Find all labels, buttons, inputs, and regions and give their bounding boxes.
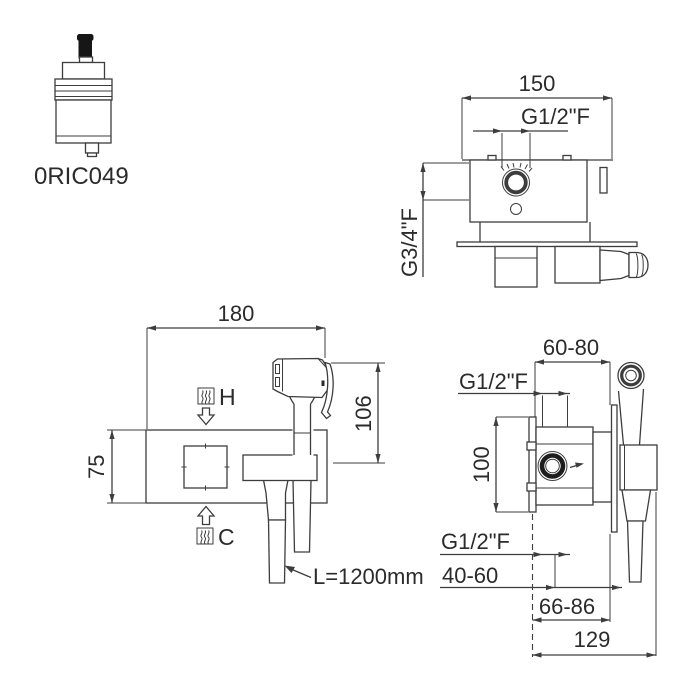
hose-side: [628, 521, 644, 582]
leader-arrowhead: [285, 566, 296, 574]
sprayer-body-line: [619, 391, 624, 445]
arrowhead: [521, 128, 530, 133]
cartridge-stem: [79, 39, 92, 58]
plate-edge-on: [612, 405, 618, 532]
arrowhead: [647, 652, 656, 657]
dim-66-86-label: 66-86: [539, 594, 595, 619]
cartridge-seat-ring: [542, 456, 563, 477]
sprayer-head: [273, 359, 330, 398]
arrowhead: [533, 652, 542, 657]
cold-label: C: [218, 524, 235, 550]
cold-water-symbol: C: [197, 507, 235, 551]
dim-100-label: 100: [469, 446, 494, 483]
wall-flange: [529, 417, 536, 512]
body-tab: [527, 483, 536, 491]
wave-line-icon: [201, 531, 202, 544]
cartridge-drawing: 0RIC049: [34, 35, 129, 191]
arrowhead: [612, 585, 621, 590]
arrowhead: [375, 363, 380, 372]
technical-drawing-page: 0RIC049 150: [0, 0, 700, 700]
arrowhead: [559, 552, 568, 557]
arrowhead: [535, 359, 544, 364]
arrowhead: [533, 617, 542, 622]
dim-75-label: 75: [84, 455, 109, 479]
dim-60-80-label: 60-80: [543, 335, 599, 360]
dim-180-label: 180: [218, 301, 255, 326]
head-button: [322, 381, 325, 387]
sprayer-holder: [243, 455, 317, 481]
arrowhead: [603, 95, 612, 100]
arrowhead: [493, 128, 502, 133]
arrowhead: [601, 617, 610, 622]
body-front-boss: [593, 432, 612, 502]
valve-housing: [470, 160, 587, 222]
side-view: 60-80 G1/2"F 100 G1/2"F 40-60 66-86: [440, 335, 657, 658]
cartridge-bottom-nub: [86, 143, 99, 153]
top-view: 150 G1/2"F G3/4"F: [397, 71, 648, 287]
sprayer-cap-top: [629, 253, 648, 278]
front-view: 180 H C: [84, 301, 424, 589]
cover-plate-edge: [457, 242, 637, 247]
hose-nut-side: [622, 490, 651, 521]
cartridge-bottom-lip: [88, 153, 97, 157]
body-tab: [527, 442, 536, 450]
sprayer-head-ring: [622, 366, 641, 385]
drawing-svg: 0RIC049 150: [0, 0, 700, 700]
wave-line-icon: [205, 391, 206, 404]
arrowhead: [493, 503, 498, 512]
housing-tab: [488, 156, 496, 161]
arrowhead: [109, 494, 114, 503]
inlet-thread-label: G3/4"F: [397, 208, 422, 277]
bottom-thread-label: G1/2"F: [441, 529, 510, 554]
arrowhead: [316, 325, 325, 330]
arrowhead: [534, 552, 543, 557]
up-arrow-icon: [198, 507, 214, 525]
arrowhead: [109, 430, 114, 439]
dim-106-label: 106: [351, 395, 376, 432]
hose-nut: [264, 480, 289, 520]
cartridge-body: [56, 100, 111, 143]
arrowhead: [420, 191, 425, 200]
cartridge-code-label: 0RIC049: [34, 163, 129, 190]
housing-tab: [563, 156, 571, 161]
wave-line-icon: [204, 531, 205, 544]
handle-lower-rod: [293, 480, 311, 552]
top-thread-label: G1/2"F: [459, 369, 528, 394]
sprayer-handle-top: [600, 250, 629, 281]
arrowhead: [493, 417, 498, 426]
hose: [269, 520, 286, 583]
hot-label: H: [219, 384, 236, 410]
wave-line-icon: [209, 391, 210, 404]
down-arrow-icon: [198, 408, 214, 425]
arrowhead: [375, 454, 380, 463]
arrowhead: [601, 359, 610, 364]
wave-line-icon: [208, 531, 209, 544]
outlet-thread-label: G1/2"F: [521, 104, 590, 129]
wave-line-icon: [202, 391, 203, 404]
housing-side-tab: [600, 168, 607, 194]
control-block: [495, 247, 537, 288]
arrowhead: [147, 325, 156, 330]
arrowhead: [462, 95, 471, 100]
arrowhead: [546, 585, 555, 590]
sprayer-body-line: [640, 389, 644, 445]
control-square: [184, 446, 227, 488]
cartridge-upper-cylinder: [63, 63, 105, 80]
arrowhead: [559, 391, 568, 396]
dim-129-label: 129: [574, 627, 611, 652]
cartridge-neck: [80, 57, 93, 63]
hot-water-symbol: H: [198, 384, 236, 425]
dim-150-label: 150: [519, 71, 556, 96]
holder-side: [620, 445, 657, 490]
dim-40-60-label: 40-60: [442, 563, 498, 588]
hose-length-label: L=1200mm: [313, 564, 424, 589]
arrowhead: [420, 163, 425, 172]
arrowhead: [534, 391, 543, 396]
sprayer-holder-top: [555, 247, 600, 284]
